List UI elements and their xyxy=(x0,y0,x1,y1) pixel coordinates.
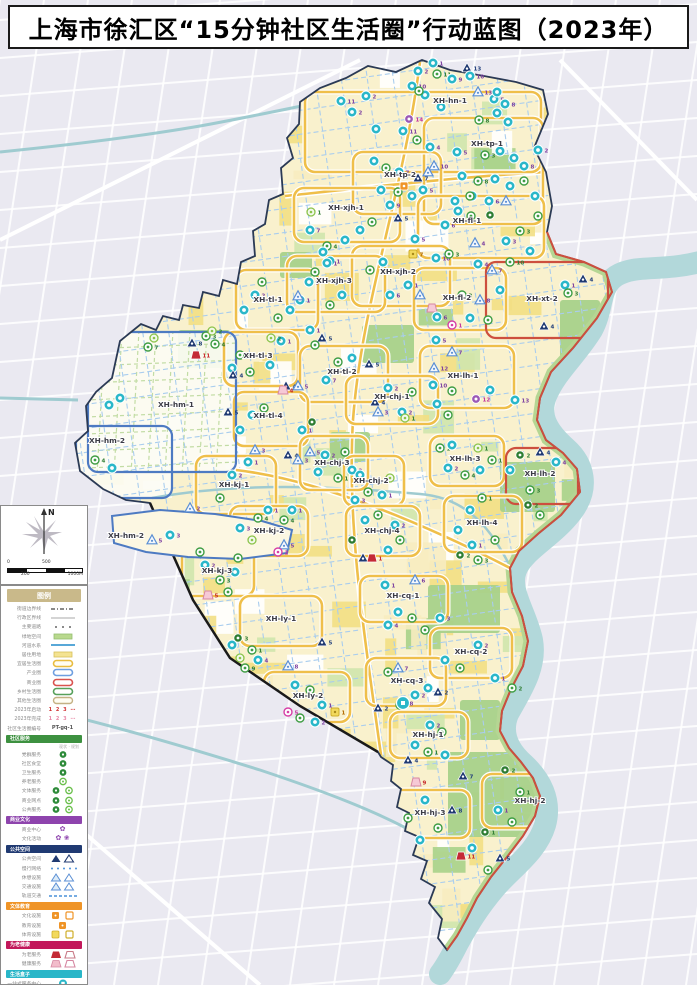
svg-text:7: 7 xyxy=(470,775,474,781)
legend-label: 轨道交通 xyxy=(4,892,41,899)
legend-symbol: ✿ ❀ xyxy=(41,835,84,842)
svg-text:2: 2 xyxy=(402,524,406,530)
svg-text:3: 3 xyxy=(456,253,460,259)
map-icon-g xyxy=(534,212,542,220)
svg-text:2: 2 xyxy=(239,474,243,480)
svg-text:8: 8 xyxy=(410,702,414,708)
svg-text:5: 5 xyxy=(159,539,163,545)
svg-text:8: 8 xyxy=(486,119,490,125)
svg-text:1: 1 xyxy=(459,324,463,330)
svg-text:2: 2 xyxy=(197,507,201,513)
map-icon-g xyxy=(246,368,254,376)
svg-text:2: 2 xyxy=(467,554,471,560)
map-icon-c xyxy=(371,124,381,134)
map-icon-c xyxy=(450,196,460,206)
svg-text:2: 2 xyxy=(425,70,429,76)
map-icon-g xyxy=(196,548,204,556)
svg-text:1: 1 xyxy=(259,649,263,655)
legend-row: 教育设施 xyxy=(1,920,87,929)
legend-symbol xyxy=(41,911,84,920)
svg-text:1: 1 xyxy=(435,751,439,757)
legend-label: 产业圈 xyxy=(4,669,41,676)
svg-text:1: 1 xyxy=(317,329,321,335)
svg-text:3: 3 xyxy=(537,489,541,495)
svg-text:4: 4 xyxy=(437,146,441,152)
zone-label: XH-chj-4 xyxy=(364,526,399,535)
svg-text:3: 3 xyxy=(575,292,579,298)
map-icon-g xyxy=(296,714,304,722)
map-icon-g xyxy=(274,314,282,322)
legend-label: 文体服务 xyxy=(4,787,41,794)
svg-text:9: 9 xyxy=(423,781,427,787)
map-icon-g xyxy=(341,448,349,456)
scale-tick: 500 xyxy=(42,560,51,565)
legend-label: 主要道路 xyxy=(4,623,41,630)
svg-text:4: 4 xyxy=(547,451,551,457)
map-icon-c xyxy=(410,740,420,750)
svg-text:9: 9 xyxy=(459,78,463,84)
legend-row: 文化设施 xyxy=(1,911,87,920)
legend-symbol xyxy=(41,696,84,705)
map-icon-g xyxy=(396,536,404,544)
legend-label: 文化活动 xyxy=(4,835,41,842)
map-icon-g xyxy=(234,554,242,562)
svg-text:2: 2 xyxy=(385,707,389,713)
map-icon-c xyxy=(318,247,328,257)
legend-label: 体育设施 xyxy=(4,931,41,938)
legend-symbol xyxy=(41,750,84,759)
map-icon-g xyxy=(434,824,442,832)
svg-text:8: 8 xyxy=(487,299,491,305)
legend-label: 河道水系 xyxy=(4,642,41,649)
legend-label: 卫生服务 xyxy=(4,769,41,776)
zone-label: XH-ly-1 xyxy=(266,614,297,623)
legend-label: 党群服务 xyxy=(4,751,41,758)
map-icon-c xyxy=(355,225,365,235)
svg-text:1: 1 xyxy=(389,494,393,500)
svg-text:2: 2 xyxy=(373,95,377,101)
svg-text:8: 8 xyxy=(295,665,299,671)
legend-row: 宜居生活圈 xyxy=(1,659,87,668)
svg-text:2: 2 xyxy=(527,454,531,460)
svg-text:1: 1 xyxy=(440,62,444,68)
svg-text:2: 2 xyxy=(322,721,326,727)
map-icon-c xyxy=(107,463,117,473)
map-icon-c xyxy=(393,607,403,617)
map-icon-c xyxy=(340,235,350,245)
map-icon-c xyxy=(347,353,357,363)
zone-label: XH-ly-2 xyxy=(293,691,324,700)
zone-label: XH-hm-1 xyxy=(158,400,194,409)
legend-symbol xyxy=(41,633,84,640)
page-title: 上海市徐汇区“15分钟社区生活圈”行动蓝图（2023年） xyxy=(8,5,689,49)
legend-row: 公共服务 xyxy=(1,805,87,814)
svg-text:1: 1 xyxy=(379,557,383,563)
svg-text:2: 2 xyxy=(219,330,223,336)
svg-text:4: 4 xyxy=(222,343,226,349)
svg-text:1: 1 xyxy=(307,299,311,305)
legend-row: 卫生服务 xyxy=(1,768,87,777)
svg-text:1: 1 xyxy=(299,509,303,515)
legend-row: 产业圈 xyxy=(1,668,87,677)
legend-row: 为老服务 xyxy=(1,950,87,959)
legend-row: 休憩设施 xyxy=(1,873,87,882)
legend-label: 社区生活圈编号 xyxy=(4,725,41,732)
legend-row: 行政区界线 xyxy=(1,613,87,622)
svg-text:4: 4 xyxy=(590,278,594,284)
compass: N xyxy=(1,506,87,560)
svg-text:3: 3 xyxy=(485,559,489,565)
legend-symbol xyxy=(41,786,84,795)
svg-text:2: 2 xyxy=(545,149,549,155)
legend-symbol: 1 2 3 ⋯ xyxy=(41,716,84,722)
map-icon-g xyxy=(448,387,456,395)
legend-label: 2023年启动 xyxy=(4,706,41,713)
zone-label: XH-tl-4 xyxy=(253,411,282,420)
map-icon-c xyxy=(378,257,388,267)
map-icon-g xyxy=(364,488,372,496)
map-icon-c xyxy=(285,305,295,315)
svg-text:8: 8 xyxy=(459,809,463,815)
svg-text:1: 1 xyxy=(415,284,419,290)
legend-symbol xyxy=(41,668,84,677)
svg-text:2: 2 xyxy=(285,551,289,557)
zone-label: XH-kj-2 xyxy=(254,526,285,535)
legend-label: 其他生活圈 xyxy=(4,697,41,704)
map-icon-c xyxy=(407,191,417,201)
legend-row: 轨道交通 xyxy=(1,891,87,900)
map-icon-g xyxy=(484,866,492,874)
legend-row: 健康服务 xyxy=(1,959,87,968)
svg-text:11: 11 xyxy=(348,100,356,106)
svg-text:5: 5 xyxy=(215,594,219,600)
legend-symbol xyxy=(41,687,84,696)
legend-label: 行政区界线 xyxy=(4,614,41,621)
svg-text:4: 4 xyxy=(290,389,294,395)
legend-panel: 图例 街道边界线 行政区界线 主要道路 绿地空间 河道水系 居住用地 宜居生活圈… xyxy=(0,585,88,985)
legend-symbol xyxy=(41,606,84,612)
svg-text:2: 2 xyxy=(519,687,523,693)
zone-label: XH-hj-2 xyxy=(515,796,546,805)
map-icon-c xyxy=(509,153,519,163)
zone-label: XH-lh-4 xyxy=(467,518,498,527)
legend-symbol xyxy=(41,854,84,863)
map-icon-c xyxy=(453,206,463,216)
svg-text:2: 2 xyxy=(512,769,516,775)
legend-label: 社区食堂 xyxy=(4,760,41,767)
svg-text:4: 4 xyxy=(240,374,244,380)
svg-text:4: 4 xyxy=(485,263,489,269)
map-icon-g xyxy=(421,626,429,634)
svg-text:8: 8 xyxy=(199,342,203,348)
legend-row: 文体服务 xyxy=(1,786,87,795)
map-icon-c xyxy=(495,285,505,295)
svg-text:6: 6 xyxy=(444,316,448,322)
legend-row: 商业网点 xyxy=(1,796,87,805)
legend-row: 交通设施 xyxy=(1,882,87,891)
legend-label: 居住用地 xyxy=(4,651,41,658)
svg-text:1: 1 xyxy=(334,262,338,268)
zone-label: XH-xjh-3 xyxy=(316,276,352,285)
legend-symbol: 1 2 3 ⋯ xyxy=(41,707,84,713)
zone-label: XH-lh-2 xyxy=(525,469,556,478)
map-icon-g xyxy=(408,614,416,622)
map-icon-c xyxy=(104,400,114,410)
zone-label: XH-xt-2 xyxy=(526,294,557,303)
svg-text:3: 3 xyxy=(385,411,389,417)
legend-symbol xyxy=(41,777,84,786)
svg-text:11: 11 xyxy=(203,354,211,360)
zone-label: XH-fl-2 xyxy=(443,293,472,302)
zone-label: XH-hn-1 xyxy=(433,96,467,105)
map-icon-gf xyxy=(308,418,316,426)
svg-text:5: 5 xyxy=(422,238,426,244)
map-icon-g xyxy=(311,341,319,349)
svg-text:7: 7 xyxy=(459,351,463,357)
map-icon-g xyxy=(224,588,232,596)
map-icon-c xyxy=(485,385,495,395)
legend-row: 居住用地 xyxy=(1,650,87,659)
svg-text:1: 1 xyxy=(479,544,483,550)
legend-row: 党群服务 xyxy=(1,750,87,759)
legend-row: 公共空间 xyxy=(1,854,87,863)
map-icon-c xyxy=(337,290,347,300)
svg-text:6: 6 xyxy=(496,200,500,206)
svg-text:1: 1 xyxy=(318,211,322,217)
map-icon-lg xyxy=(150,334,158,342)
svg-text:3: 3 xyxy=(247,527,251,533)
map-icon-c xyxy=(290,680,300,690)
map-icon-c xyxy=(465,313,475,323)
legend-row: 慢行网络 xyxy=(1,864,87,873)
map-icon-c xyxy=(467,843,477,853)
map-icon-g xyxy=(415,87,423,95)
map-icon-lg xyxy=(236,654,244,662)
map-icon-c xyxy=(115,393,125,403)
map-icon-c xyxy=(423,683,433,693)
svg-text:5: 5 xyxy=(291,544,295,550)
svg-text:8: 8 xyxy=(531,165,535,171)
map-icon-c xyxy=(383,545,393,555)
map-icon-gf xyxy=(486,211,494,219)
map-icon-g xyxy=(456,664,464,672)
legend-symbol xyxy=(41,615,84,621)
svg-text:3: 3 xyxy=(527,230,531,236)
svg-text:1: 1 xyxy=(485,447,489,453)
map-icon-g xyxy=(368,218,376,226)
svg-text:7: 7 xyxy=(405,667,409,673)
svg-text:13: 13 xyxy=(474,67,482,73)
svg-text:4: 4 xyxy=(382,401,386,407)
svg-text:7: 7 xyxy=(317,229,321,235)
svg-text:3: 3 xyxy=(447,617,451,623)
svg-text:1: 1 xyxy=(275,509,279,515)
svg-text:5: 5 xyxy=(443,339,447,345)
scale-bar: 0 200 500 1000M xyxy=(7,560,83,578)
map-icon-c xyxy=(360,515,370,525)
legend-symbol xyxy=(41,768,84,777)
legend-symbol: ✿ xyxy=(41,826,84,833)
legend-label: 养老服务 xyxy=(4,778,41,785)
legend-section-header: 公共空间 xyxy=(6,845,82,853)
zone-label: XH-xjh-2 xyxy=(380,267,416,276)
svg-text:4: 4 xyxy=(395,624,399,630)
legend-body: 街道边界线 行政区界线 主要道路 绿地空间 河道水系 居住用地 宜居生活圈 产业… xyxy=(1,604,87,985)
svg-text:4: 4 xyxy=(563,461,567,467)
legend-label: 绿地空间 xyxy=(4,633,41,640)
svg-text:5: 5 xyxy=(329,641,333,647)
scale-tick: 200 xyxy=(21,572,30,577)
legend-row: 2023年完成 1 2 3 ⋯ xyxy=(1,714,87,723)
legend-label: 街道边界线 xyxy=(4,605,41,612)
svg-text:8: 8 xyxy=(485,180,489,186)
svg-text:10: 10 xyxy=(517,261,525,267)
legend-label: 健康服务 xyxy=(4,960,41,967)
svg-text:11: 11 xyxy=(410,130,418,136)
map-icon-c xyxy=(503,117,513,127)
zone-label: XH-tl-2 xyxy=(327,367,356,376)
legend-section-header: 社区服务 xyxy=(6,735,82,743)
map-icon-c xyxy=(440,750,450,760)
svg-text:3: 3 xyxy=(177,534,181,540)
legend-symbol xyxy=(41,950,84,959)
svg-text:4: 4 xyxy=(415,759,419,765)
zone-label: XH-lh-1 xyxy=(448,371,479,380)
map-icon-c xyxy=(432,399,442,409)
svg-text:2: 2 xyxy=(278,337,282,343)
legend-row: 河道水系 xyxy=(1,641,87,650)
blueprint-page: 2131191010135141148821121531086827791417… xyxy=(0,0,697,985)
svg-text:4: 4 xyxy=(334,245,338,251)
zone-label: XH-cq-1 xyxy=(387,591,420,600)
svg-text:3: 3 xyxy=(362,499,366,505)
zone-label: XH-chj-2 xyxy=(353,476,388,485)
legend-symbol xyxy=(41,893,84,899)
map-icon-c xyxy=(505,465,515,475)
legend-header: 图例 xyxy=(7,589,81,602)
map-icon-c xyxy=(525,246,535,256)
north-label: N xyxy=(48,508,55,517)
legend-label: 公共服务 xyxy=(4,806,41,813)
svg-text:3: 3 xyxy=(245,637,249,643)
svg-text:8: 8 xyxy=(512,103,516,109)
zone-label: XH-chj-1 xyxy=(374,392,409,401)
wind-rose xyxy=(22,516,62,552)
legend-symbol xyxy=(41,624,84,630)
legend-label: 2023年完成 xyxy=(4,715,41,722)
legend-row: 2023年启动 1 2 3 ⋯ xyxy=(1,705,87,714)
map-canvas: 2131191010135141148821121531086827791417… xyxy=(0,0,697,985)
zone-label: XH-tl-3 xyxy=(243,351,272,360)
zone-label: XH-tl-1 xyxy=(253,295,282,304)
map-icon-c xyxy=(239,305,249,315)
map-icon-p xyxy=(427,304,437,312)
svg-text:4: 4 xyxy=(551,325,555,331)
svg-text:9: 9 xyxy=(252,667,256,673)
legend-row: 商业中心 ✿ xyxy=(1,825,87,834)
map-icon-c xyxy=(447,440,457,450)
svg-text:2: 2 xyxy=(455,467,459,473)
legend-label: 宜居生活圈 xyxy=(4,660,41,667)
map-icon-c xyxy=(492,87,502,97)
map-icon-gf xyxy=(348,536,356,544)
svg-text:7: 7 xyxy=(420,253,424,259)
map-icon-g xyxy=(311,268,319,276)
map-icon-c xyxy=(475,465,485,475)
legend-row: 社区食堂 xyxy=(1,759,87,768)
map-icon-c xyxy=(227,640,237,650)
map-icon-g xyxy=(258,278,266,286)
zone-label: XH-xjh-1 xyxy=(328,203,364,212)
legend-section-header: 生活盒子 xyxy=(6,970,82,978)
svg-text:2: 2 xyxy=(422,694,426,700)
svg-text:4: 4 xyxy=(472,474,476,480)
svg-text:9: 9 xyxy=(397,204,401,210)
svg-text:5: 5 xyxy=(507,857,511,863)
svg-text:3: 3 xyxy=(262,449,266,455)
legend-label: 乡村生活圈 xyxy=(4,688,41,695)
svg-text:1: 1 xyxy=(572,284,576,290)
legend-label: 商业圈 xyxy=(4,679,41,686)
svg-text:3: 3 xyxy=(492,154,496,160)
map-icon-c xyxy=(457,171,467,181)
map-icon-g xyxy=(366,266,374,274)
svg-text:7: 7 xyxy=(425,177,429,183)
svg-text:2: 2 xyxy=(445,691,449,697)
legend-row: 乡村生活圈 xyxy=(1,687,87,696)
legend-symbol: PT-gq-1 xyxy=(41,725,84,731)
svg-text:4: 4 xyxy=(102,459,106,465)
svg-text:4: 4 xyxy=(482,242,486,248)
svg-text:3: 3 xyxy=(305,459,309,465)
map-icon-g xyxy=(444,411,452,419)
svg-text:5: 5 xyxy=(329,337,333,343)
svg-text:4: 4 xyxy=(291,519,295,525)
legend-row: 主要道路 xyxy=(1,622,87,631)
legend-row: 文化活动 ✿ ❀ xyxy=(1,834,87,843)
map-icon-c xyxy=(530,191,540,201)
svg-text:1: 1 xyxy=(505,809,509,815)
map-icon-g xyxy=(508,818,516,826)
svg-text:5: 5 xyxy=(430,189,434,195)
svg-text:4: 4 xyxy=(265,517,269,523)
svg-text:1: 1 xyxy=(255,461,259,467)
svg-text:7: 7 xyxy=(155,346,159,352)
legend-label: 一站式服务中心 xyxy=(4,980,41,985)
map-icon-o xyxy=(400,182,408,190)
svg-text:1: 1 xyxy=(342,711,346,717)
svg-text:7: 7 xyxy=(333,379,337,385)
map-icon-c xyxy=(265,360,275,370)
map-icon-g xyxy=(466,192,474,200)
legend-symbol xyxy=(41,651,84,658)
svg-text:5: 5 xyxy=(464,151,468,157)
zone-label: XH-tp-1 xyxy=(471,139,503,148)
map-icon-c xyxy=(453,525,463,535)
map-icon-g xyxy=(216,494,224,502)
svg-text:5: 5 xyxy=(235,411,239,417)
map-icon-g xyxy=(404,814,412,822)
map-icon-g xyxy=(484,316,492,324)
svg-text:3: 3 xyxy=(513,240,517,246)
map-icon-g xyxy=(413,136,421,144)
zone-label: XH-hm-2 xyxy=(89,436,125,445)
legend-section-header: 为老健康 xyxy=(6,941,82,949)
map-icon-c xyxy=(415,835,425,845)
map-icon-c xyxy=(420,795,430,805)
svg-text:1: 1 xyxy=(345,477,349,483)
zone-label: XH-fl-1 xyxy=(453,216,482,225)
